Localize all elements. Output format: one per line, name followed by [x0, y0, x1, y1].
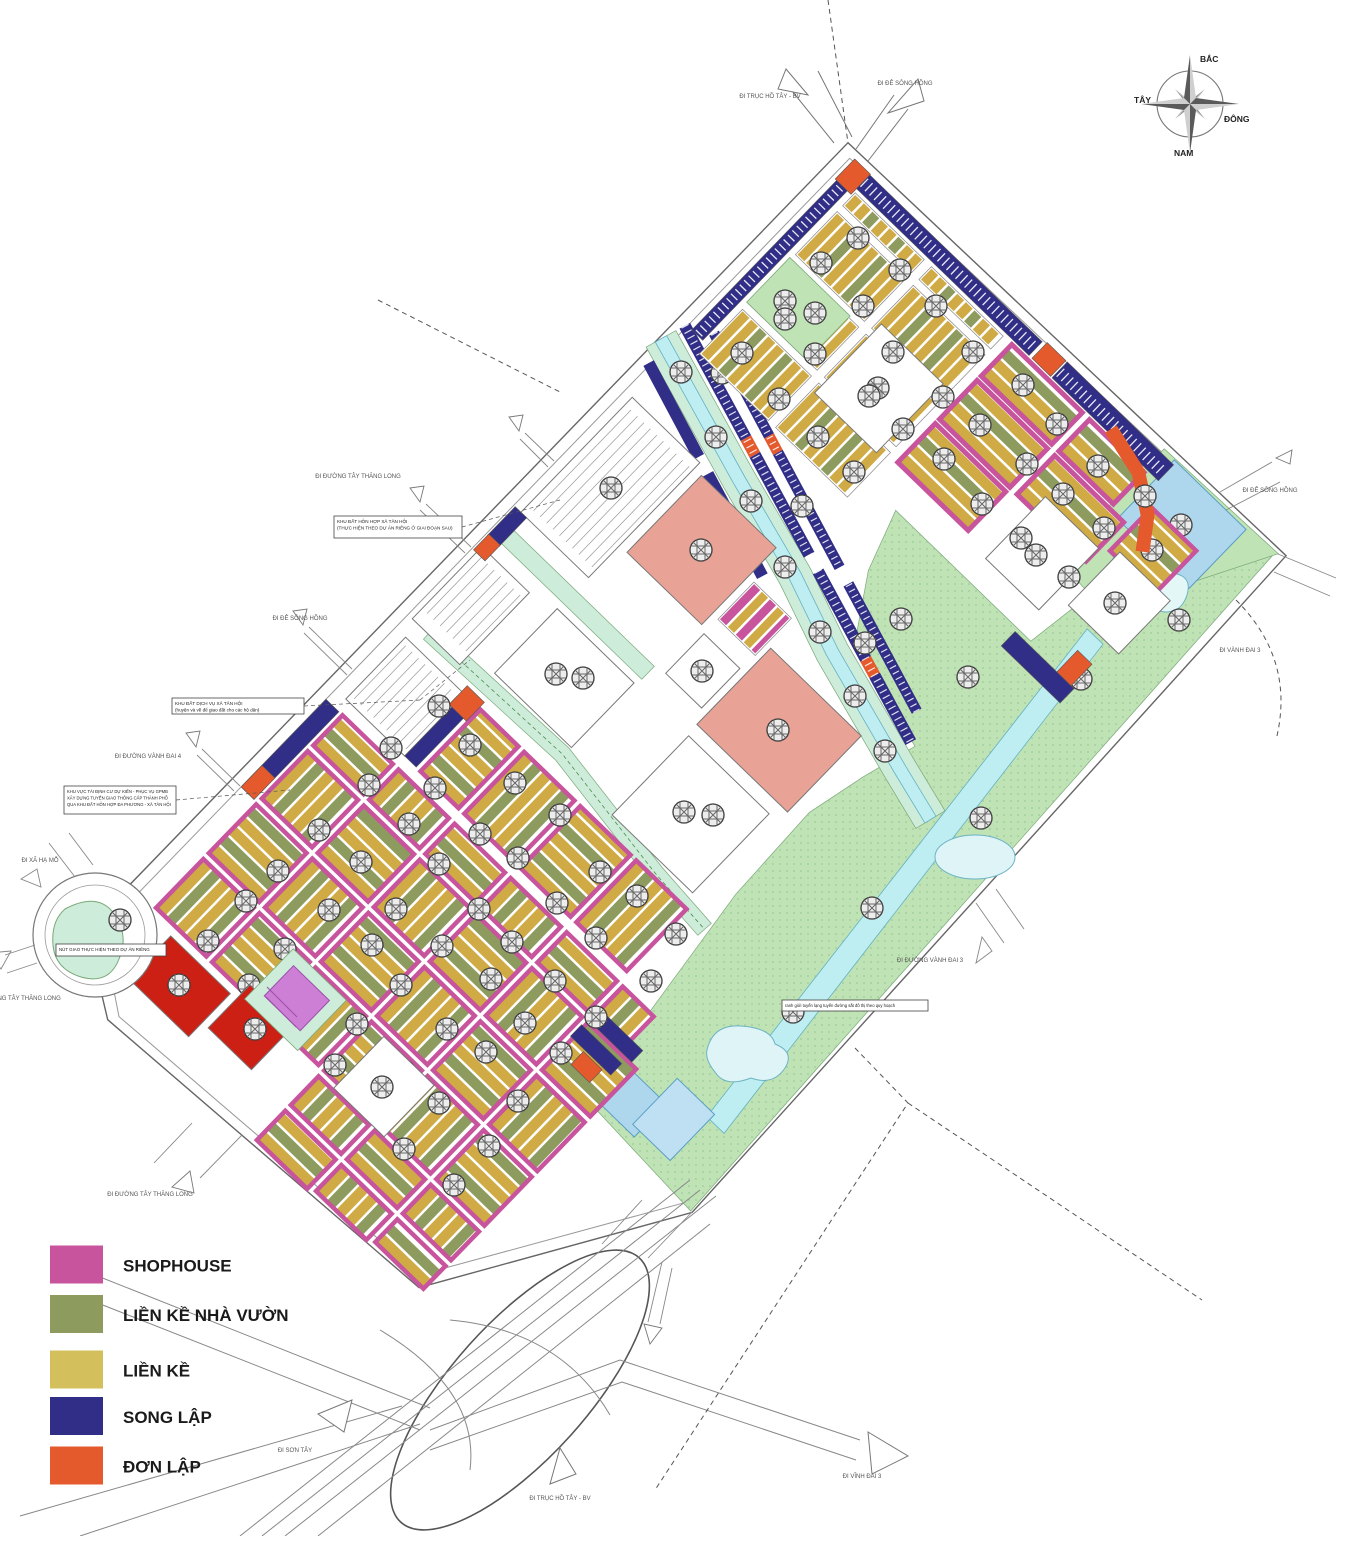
- svg-text:ranh giới tuyến lạng tuyến đườ: ranh giới tuyến lạng tuyến đường sắt đô …: [785, 1003, 896, 1008]
- svg-text:ĐI ĐƯỜNG TÂY THĂNG LONG: ĐI ĐƯỜNG TÂY THĂNG LONG: [315, 473, 401, 480]
- svg-text:KHU ĐẤT DỊCH VỤ XÃ TÂN HỘI: KHU ĐẤT DỊCH VỤ XÃ TÂN HỘI: [175, 700, 242, 706]
- svg-text:ĐI SƠN TÂY: ĐI SƠN TÂY: [278, 1447, 312, 1454]
- svg-text:ĐI TRỤC HỒ TÂY - BV: ĐI TRỤC HỒ TÂY - BV: [529, 1495, 590, 1502]
- svg-text:ĐI VĨNH ĐAI 3: ĐI VĨNH ĐAI 3: [843, 1473, 882, 1480]
- svg-text:KHU VỰC TÁI ĐỊNH CƯ DỰ KIẾN -: KHU VỰC TÁI ĐỊNH CƯ DỰ KIẾN - PHỤC VỤ GP…: [67, 789, 168, 794]
- svg-text:LIỀN KỀ NHÀ VƯỜN: LIỀN KỀ NHÀ VƯỜN: [123, 1306, 289, 1325]
- svg-text:ĐÔNG: ĐÔNG: [1224, 113, 1250, 124]
- svg-text:SHOPHOUSE: SHOPHOUSE: [123, 1257, 232, 1276]
- svg-text:LIỀN KỀ: LIỀN KỀ: [123, 1362, 190, 1381]
- svg-text:ĐI VÀNH ĐAI 3: ĐI VÀNH ĐAI 3: [1219, 647, 1261, 654]
- svg-text:NAM: NAM: [1174, 148, 1193, 158]
- svg-text:TÂY: TÂY: [1134, 94, 1151, 105]
- svg-text:ĐI ĐÊ SÔNG HỒNG: ĐI ĐÊ SÔNG HỒNG: [272, 614, 327, 622]
- svg-text:ĐI ĐƯỜNG VÀNH ĐAI 3: ĐI ĐƯỜNG VÀNH ĐAI 3: [897, 957, 964, 964]
- svg-text:BẮC: BẮC: [1200, 54, 1218, 64]
- svg-text:ĐI ĐƯỜNG TÂY THĂNG LONG: ĐI ĐƯỜNG TÂY THĂNG LONG: [107, 1191, 193, 1198]
- svg-text:(THỰC HIỆN THEO DỰ ÁN RIÊNG Ở: (THỰC HIỆN THEO DỰ ÁN RIÊNG Ở GIAI ĐOẠN …: [337, 523, 453, 530]
- svg-text:XÂY DỰNG TUYẾN GIAO THÔNG CẤP: XÂY DỰNG TUYẾN GIAO THÔNG CẤP THÀNH PHỐ: [67, 795, 169, 800]
- svg-text:ĐI ĐÊ SÔNG HỒNG: ĐI ĐÊ SÔNG HỒNG: [877, 79, 932, 87]
- svg-text:ĐI TRỤC HỒ TÂY - BV: ĐI TRỤC HỒ TÂY - BV: [739, 93, 800, 100]
- svg-text:SONG LẬP: SONG LẬP: [123, 1408, 212, 1427]
- svg-text:QUA KHU ĐẤT HỖN HỢP ĐA PHƯƠNG: QUA KHU ĐẤT HỖN HỢP ĐA PHƯƠNG - XÃ TÂN H…: [67, 802, 171, 807]
- svg-text:ĐI ĐÊ SÔNG HỒNG: ĐI ĐÊ SÔNG HỒNG: [1242, 486, 1297, 494]
- svg-text:ĐƠN LẬP: ĐƠN LẬP: [123, 1458, 201, 1477]
- svg-text:(huyện và về để giao đất cho c: (huyện và về để giao đất cho các hộ dân): [175, 706, 260, 712]
- svg-text:NÚT GIAO THỰC HIỆN THEO DỰ ÁN: NÚT GIAO THỰC HIỆN THEO DỰ ÁN RIÊNG: [59, 947, 150, 952]
- svg-text:ĐI ĐƯỜNG TÂY THĂNG LONG: ĐI ĐƯỜNG TÂY THĂNG LONG: [0, 995, 61, 1002]
- svg-text:ĐI XÃ HẠ MỖ: ĐI XÃ HẠ MỖ: [21, 857, 58, 864]
- svg-text:KHU ĐẤT HỖN HỢP XÃ TÂN HỘI: KHU ĐẤT HỖN HỢP XÃ TÂN HỘI: [337, 518, 407, 524]
- svg-text:ĐI ĐƯỜNG VÀNH ĐAI 4: ĐI ĐƯỜNG VÀNH ĐAI 4: [115, 753, 182, 760]
